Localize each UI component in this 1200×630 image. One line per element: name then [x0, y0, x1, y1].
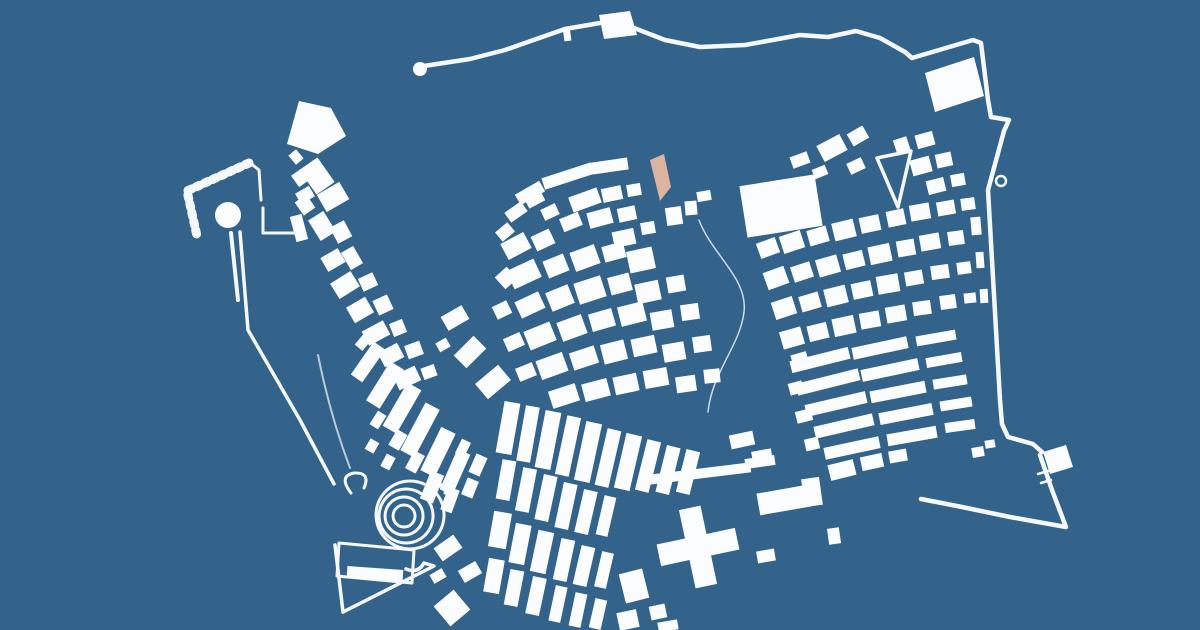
- building: [876, 273, 901, 295]
- building: [859, 310, 881, 329]
- building: [896, 239, 917, 258]
- building: [964, 292, 977, 303]
- building: [665, 206, 683, 226]
- building: [975, 252, 984, 269]
- building: [956, 261, 972, 275]
- building: [939, 294, 957, 310]
- building: [666, 275, 687, 294]
- building: [675, 375, 697, 394]
- building: [885, 304, 907, 323]
- building: [980, 289, 989, 303]
- building: [947, 230, 965, 246]
- building: [703, 368, 720, 384]
- building: [626, 183, 642, 197]
- mole-knob: [413, 62, 427, 76]
- building: [827, 527, 841, 545]
- building: [684, 201, 697, 216]
- figure-ground-page: [0, 0, 1200, 630]
- figure-ground-map: [0, 0, 1200, 630]
- building: [971, 446, 985, 458]
- building: [912, 300, 932, 316]
- building: [950, 173, 966, 187]
- building: [909, 202, 931, 221]
- building: [984, 439, 995, 449]
- building: [662, 341, 687, 363]
- building: [692, 335, 712, 353]
- building: [919, 232, 941, 251]
- building: [960, 197, 976, 211]
- castle-round-tower: [215, 202, 241, 228]
- building: [930, 264, 950, 280]
- building: [970, 217, 982, 236]
- building: [650, 309, 675, 331]
- building: [680, 303, 700, 321]
- building: [640, 221, 656, 235]
